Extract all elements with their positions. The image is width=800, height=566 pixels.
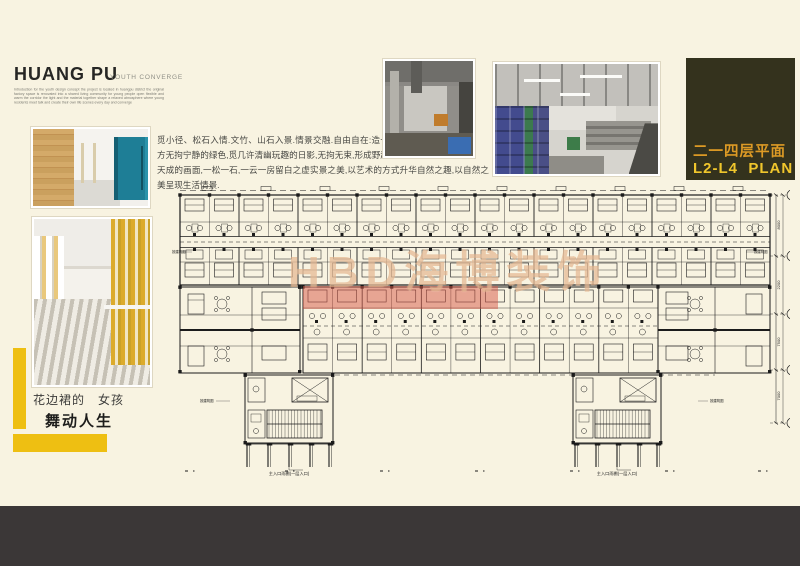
wood-wall-texture bbox=[33, 129, 74, 206]
old-warehouse-photo bbox=[383, 59, 475, 158]
floor-plan-drawing: 主入口雨棚(一层入口)主入口雨棚(一层入口)EDCBA8000220075007… bbox=[170, 186, 790, 478]
light-tube bbox=[524, 79, 560, 82]
svg-text:主入口雨棚(一层入口): 主入口雨棚(一层入口) bbox=[597, 470, 638, 477]
story-caption: 花边裙的 女孩 bbox=[33, 391, 124, 408]
yellow-slat-wall bbox=[111, 219, 150, 365]
svg-text:按建筑图: 按建筑图 bbox=[200, 398, 214, 403]
teal-elevator-door bbox=[114, 137, 149, 200]
presentation-sheet: HUANG PU YOUTH CONVERGE Introduction for… bbox=[0, 0, 800, 566]
plan-tag-box: 二一四层平面 L2-L4 PLAN bbox=[686, 58, 795, 180]
page-subtitle: YOUTH CONVERGE bbox=[110, 74, 183, 81]
story-title: 舞动人生 bbox=[45, 410, 113, 431]
green-bin bbox=[567, 137, 580, 150]
plan-tag-chinese: 二一四层平面 bbox=[693, 140, 786, 161]
svg-text:8000: 8000 bbox=[776, 220, 781, 230]
svg-text:7000: 7000 bbox=[776, 391, 781, 401]
svg-text:主入口雨棚(一层入口): 主入口雨棚(一层入口) bbox=[269, 470, 310, 477]
plan-tag-latin: L2-L4 PLAN bbox=[693, 160, 793, 177]
yellow-accent-bar-horizontal bbox=[13, 434, 107, 452]
svg-text:按建筑图: 按建筑图 bbox=[710, 398, 724, 403]
svg-text:2200: 2200 bbox=[776, 280, 781, 290]
intro-paragraph: Introduction for the youth design concep… bbox=[14, 88, 164, 105]
svg-text:7500: 7500 bbox=[776, 337, 781, 347]
light-tube bbox=[560, 93, 589, 96]
orange-crate bbox=[434, 114, 448, 125]
striped-corridor-photo bbox=[32, 217, 152, 387]
factory-floor-photo bbox=[493, 62, 660, 176]
svg-text:按建筑图: 按建筑图 bbox=[172, 249, 186, 254]
corridor-door-photo bbox=[31, 127, 150, 208]
blue-tarp bbox=[448, 137, 471, 154]
yellow-accent-bar-vertical bbox=[13, 348, 26, 429]
page-title: HUANG PU bbox=[14, 64, 118, 85]
footer-bar: BY HBD Design Co.Ltd bbox=[0, 506, 800, 566]
svg-text:按建筑图: 按建筑图 bbox=[754, 249, 768, 254]
light-tube bbox=[580, 75, 622, 78]
stacked-crates bbox=[495, 106, 549, 174]
